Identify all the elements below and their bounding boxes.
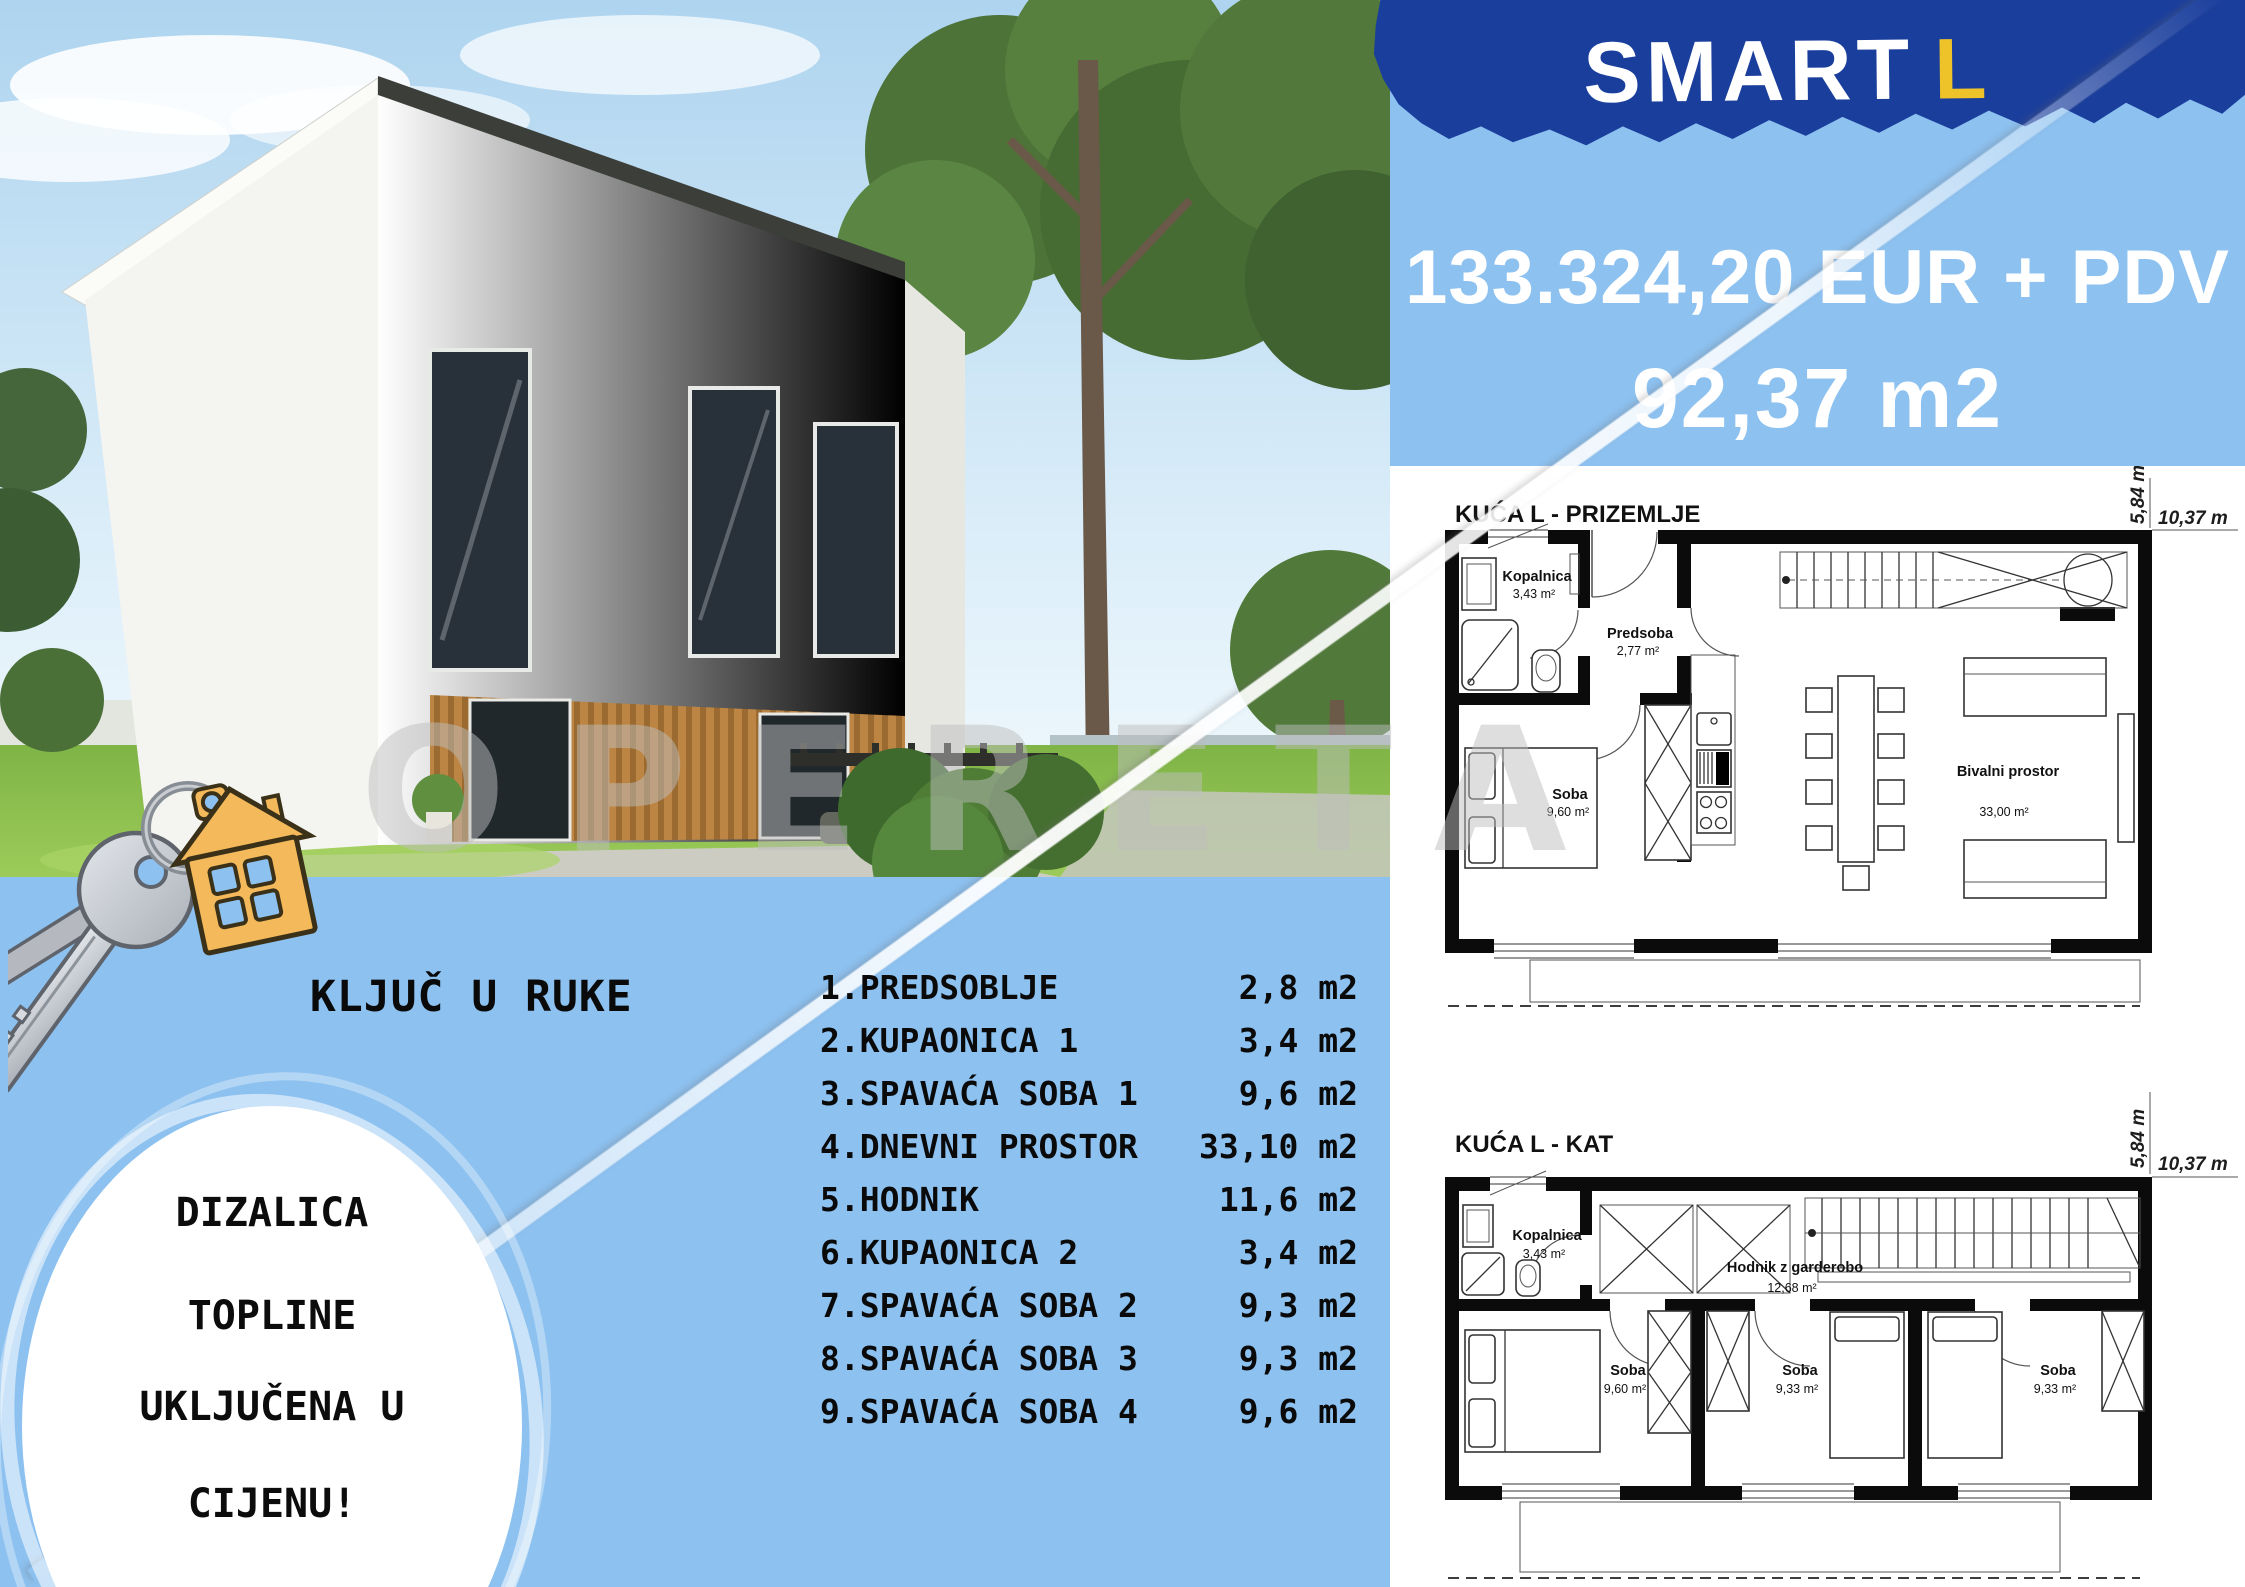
area-text: 92,37 m2 [1390, 350, 2245, 447]
plan1-room-kopalnica: Kopalnica [1502, 569, 1572, 585]
plan2-room-soba3: Soba [2040, 1363, 2076, 1379]
room-label: 4.DNEVNI PROSTOR [820, 1127, 1138, 1166]
badge-line-4: CIJENU! [22, 1481, 522, 1527]
room-label: 7.SPAVAĆA SOBA 2 [820, 1286, 1138, 1325]
room-area: 9,3 m2 [1239, 1339, 1358, 1378]
plan2-room-kopalnica-area: 3,43 m² [1523, 1247, 1565, 1261]
room-list-item: 8.SPAVAĆA SOBA 3 9,3 m2 [820, 1339, 1358, 1392]
plan1-room-predsoba-area: 2,77 m² [1617, 644, 1659, 658]
plan2-height-dim: 5,84 m [2128, 1109, 2149, 1168]
header-band: SMARTL [1330, 0, 2245, 158]
plan2-room-soba2: Soba [1782, 1363, 1818, 1379]
room-list-item: 1.PREDSOBLJE 2,8 m2 [820, 968, 1358, 1021]
heat-pump-badge: DIZALICA TOPLINE UKLJUČENA U CIJENU! [22, 1106, 522, 1587]
plan2-room-soba1: Soba [1610, 1363, 1646, 1379]
plan1-title: KUĆA L - PRIZEMLJE [1455, 500, 1700, 528]
room-list-item: 7.SPAVAĆA SOBA 2 9,3 m2 [820, 1286, 1358, 1339]
room-label: 6.KUPAONICA 2 [820, 1233, 1078, 1272]
room-area: 3,4 m2 [1239, 1021, 1358, 1060]
room-list: 1.PREDSOBLJE 2,8 m2 2.KUPAONICA 1 3,4 m2… [820, 968, 1358, 1445]
room-label: 5.HODNIK [820, 1180, 979, 1219]
house-keychain-icon [161, 769, 328, 956]
room-area: 33,10 m2 [1199, 1127, 1358, 1166]
room-area: 9,6 m2 [1239, 1074, 1358, 1113]
plan1-dining-set [1806, 676, 1904, 890]
plan1-kitchen [1691, 655, 1735, 845]
plan2-room-soba1-area: 9,60 m² [1604, 1382, 1646, 1396]
badge-line-2: TOPLINE [22, 1293, 522, 1339]
plan1-porch [1448, 960, 2140, 1006]
room-label: 9.SPAVAĆA SOBA 4 [820, 1392, 1138, 1431]
brand-name: SMART [1583, 22, 1915, 121]
flyer-canvas: SMARTL 133.324,20 EUR + PDV 92,37 m2 KUĆ… [0, 0, 2245, 1587]
plan1-room-bivalni: Bivalni prostor [1957, 764, 2060, 780]
room-list-item: 4.DNEVNI PROSTOR 33,10 m2 [820, 1127, 1358, 1180]
key-head [79, 833, 193, 947]
plan2-porch [1448, 1502, 2140, 1578]
plan2-room-hodnik: Hodnik z garderobo [1727, 1260, 1863, 1276]
plan1-room-predsoba: Predsoba [1607, 626, 1674, 642]
badge-line-3: UKLJUČENA U [22, 1384, 522, 1430]
room-area: 9,6 m2 [1239, 1392, 1358, 1431]
plan2-width-dim: 10,37 m [2158, 1154, 2228, 1175]
room-list-item: 6.KUPAONICA 2 3,4 m2 [820, 1233, 1358, 1286]
floor-plan-upper: KUĆA L - KAT 5,84 m 10,37 m [1390, 1030, 2245, 1587]
room-label: 3.SPAVAĆA SOBA 1 [820, 1074, 1138, 1113]
room-label: 1.PREDSOBLJE [820, 968, 1058, 1007]
plan2-room-kopalnica: Kopalnica [1512, 1228, 1582, 1244]
room-area: 9,3 m2 [1239, 1286, 1358, 1325]
plan2-room-soba2-area: 9,33 m² [1776, 1382, 1818, 1396]
price-text: 133.324,20 EUR + PDV [1390, 234, 2245, 321]
room-area: 11,6 m2 [1219, 1180, 1358, 1219]
plan2-room-hodnik-area: 12,68 m² [1767, 1281, 1816, 1295]
room-list-item: 2.KUPAONICA 1 3,4 m2 [820, 1021, 1358, 1074]
room-label: 2.KUPAONICA 1 [820, 1021, 1078, 1060]
plan1-staircase [1780, 552, 2127, 608]
floor-plan-ground: KUĆA L - PRIZEMLJE 5,84 m 10,37 m [1390, 466, 2245, 1030]
plan2-wardrobe-boxes [1600, 1205, 1790, 1293]
plan2-title: KUĆA L - KAT [1455, 1130, 1614, 1158]
plan2-dimensions: 5,84 m 10,37 m [2128, 1092, 2238, 1177]
model-title: SMARTL [1330, 17, 2245, 126]
model-letter: L [1934, 21, 1993, 118]
room-area: 2,8 m2 [1239, 968, 1358, 1007]
plan1-room-soba: Soba [1552, 787, 1588, 803]
plan2-room-soba3-area: 9,33 m² [2034, 1382, 2076, 1396]
badge-line-1: DIZALICA [22, 1190, 522, 1236]
room-list-item: 5.HODNIK 11,6 m2 [820, 1180, 1358, 1233]
plan1-width-dim: 10,37 m [2158, 508, 2228, 529]
room-list-item: 3.SPAVAĆA SOBA 1 9,6 m2 [820, 1074, 1358, 1127]
house-photo [0, 0, 1390, 877]
room-area: 3,4 m2 [1239, 1233, 1358, 1272]
plan1-room-kopalnica-area: 3,43 m² [1513, 587, 1555, 601]
room-list-item: 9.SPAVAĆA SOBA 4 9,6 m2 [820, 1392, 1358, 1445]
plan1-height-dim: 5,84 m [2128, 466, 2149, 524]
plan1-room-bivalni-area: 33,00 m² [1979, 805, 2028, 819]
plan1-room-soba-area: 9,60 m² [1547, 805, 1589, 819]
room-label: 8.SPAVAĆA SOBA 3 [820, 1339, 1138, 1378]
keys-note: KLJUČ U RUKE [310, 972, 633, 1022]
plan1-dimensions: 5,84 m 10,37 m [2128, 466, 2238, 530]
